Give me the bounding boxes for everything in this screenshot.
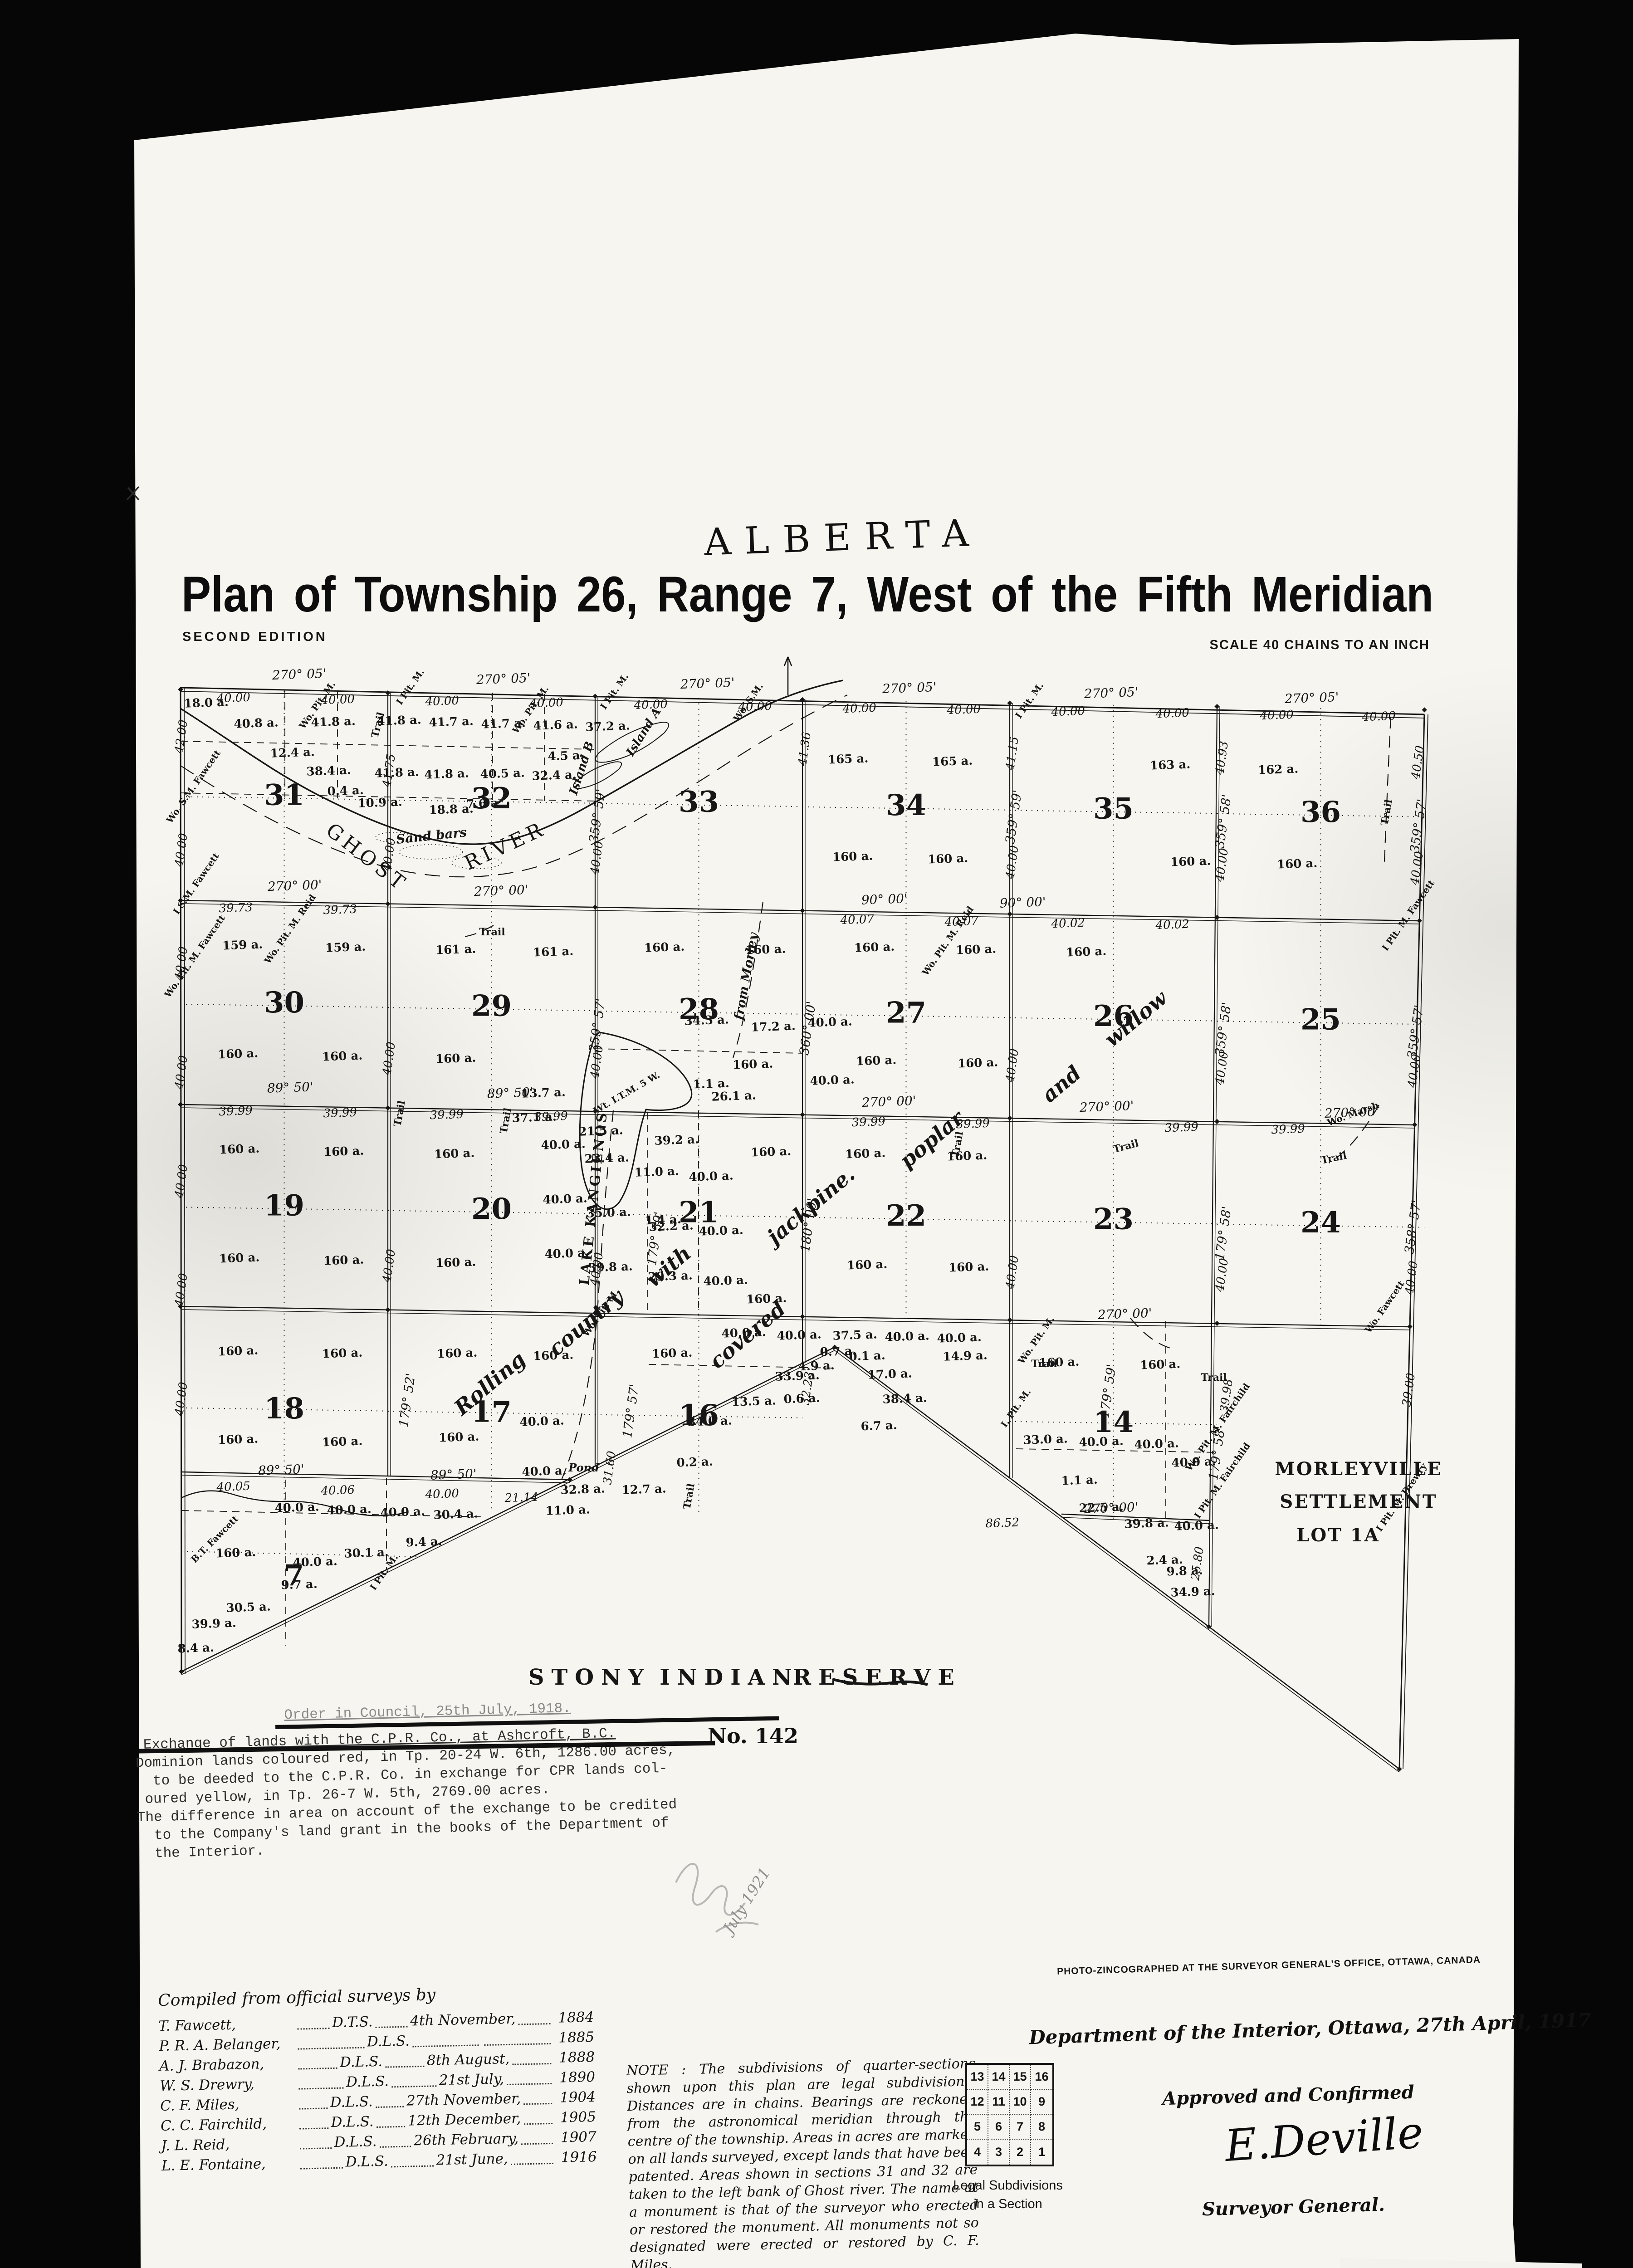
acreage-label: 40.0 a.	[541, 1137, 586, 1152]
surveyor-cell: D.L.S.	[334, 2131, 377, 2152]
acreage-label: 12.4 a.	[270, 745, 315, 760]
surveyor-cell: 1885	[553, 2027, 595, 2048]
acreage-label: 38.4 a.	[306, 763, 351, 778]
distance-label: 40.00	[425, 694, 459, 709]
compiled-surveys-block: Compiled from official surveys by T. Faw…	[158, 1982, 597, 2176]
acreage-label: 10.9 a.	[357, 795, 402, 810]
order-number: No. 142	[708, 1724, 798, 1748]
survey-monument-mark	[1422, 707, 1427, 712]
trail-label: Trail	[681, 1482, 697, 1510]
bearing-label: 359° 57'	[586, 997, 608, 1053]
surveyor-cell	[484, 2043, 551, 2046]
surveyor-cell	[298, 2068, 337, 2070]
trail-label: Trail	[1031, 1358, 1057, 1370]
bearing-label: 270° 00'	[1083, 1500, 1139, 1516]
bearing-label: 359° 59'	[1002, 789, 1025, 845]
order-in-council-block: Order in Council, 25th July, 1918. Excha…	[134, 1694, 818, 1864]
acreage-label: 1.1 a.	[693, 1077, 729, 1092]
surveyor-cell: T. Fawcett,	[158, 2014, 295, 2036]
surveyor-cell: D.L.S.	[346, 2071, 389, 2092]
acreage-label: 40.0 a.	[689, 1169, 733, 1184]
distance-label: 39.99	[1271, 1122, 1305, 1137]
surveyor-cell: L. E. Fontaine,	[161, 2153, 298, 2176]
acreage-label: 40.0 a.	[327, 1502, 372, 1517]
distance-label: 40.00	[1003, 845, 1022, 880]
section-line-horizontal	[181, 1306, 1410, 1327]
acreage-label: 161 a.	[435, 942, 476, 957]
acreage-label: 39.9 a.	[191, 1616, 236, 1631]
trail-label: Trail	[1201, 1372, 1227, 1383]
acreage-label: 40.0 a.	[543, 1192, 587, 1207]
distance-label: 40.00	[1213, 1257, 1231, 1293]
monument-label: I. Pit. M.	[998, 1387, 1033, 1429]
acreage-label: 159 a.	[222, 938, 263, 953]
surveyor-cell	[376, 2026, 408, 2028]
trail-label: Trail	[391, 1100, 408, 1127]
section-number-27: 27	[886, 996, 926, 1030]
surveyor-cell	[507, 2083, 552, 2085]
surveyor-cell: D.L.S.	[367, 2031, 410, 2052]
legend-cell: 14	[988, 2065, 1010, 2090]
legend-cell: 1	[1031, 2140, 1052, 2165]
scanned-township-plan: { "header": { "province": "ALBERTA", "ti…	[0, 0, 1633, 2268]
acreage-label: 160 a.	[928, 851, 968, 866]
distance-label: 40.00	[1003, 1048, 1022, 1084]
acreage-label: 160 a.	[219, 1251, 260, 1266]
surveyor-cell: D.L.S.	[330, 2092, 373, 2112]
acreage-label: 160 a.	[958, 1056, 998, 1070]
feature-label: country	[544, 1283, 630, 1361]
section-number-34: 34	[886, 788, 926, 822]
surveyor-cell	[524, 2103, 552, 2105]
surveyor-cell	[512, 2063, 551, 2065]
section-number-22: 22	[886, 1199, 926, 1233]
section-number-14: 14	[1093, 1405, 1134, 1439]
acreage-label: 40.0 a.	[522, 1464, 567, 1479]
acreage-label: 160 a.	[856, 1053, 897, 1068]
surveyor-cell	[376, 2126, 406, 2128]
section-number-17: 17	[471, 1395, 512, 1429]
acreage-label: 13.5 a.	[731, 1394, 776, 1409]
acreage-label: 165 a.	[828, 752, 869, 767]
monument-label: I Pit. M.	[598, 671, 631, 712]
section-number-18: 18	[264, 1392, 304, 1426]
acreage-label: 17.2 a.	[751, 1019, 796, 1034]
acreage-label: 38.4 a.	[882, 1391, 927, 1406]
distance-label: 40.50	[1409, 745, 1427, 781]
acreage-label: 159 a.	[325, 940, 366, 955]
distance-label: 40.00	[172, 1272, 191, 1308]
bearing-label: 270° 05'	[1083, 684, 1139, 701]
distance-label: 40.00	[172, 832, 191, 868]
acreage-label: 40.8 a.	[234, 716, 279, 731]
legend-cell: 12	[967, 2090, 988, 2115]
survey-monument-mark	[1407, 1324, 1412, 1329]
distance-label: 40.00	[172, 1381, 191, 1417]
surveyor-cell: 27th November,	[406, 2088, 521, 2111]
surveyor-cell: 1884	[553, 2007, 594, 2028]
surveyor-cell	[391, 2085, 436, 2087]
acreage-label: 40.0 a.	[274, 1500, 319, 1515]
distance-label: 31.60	[601, 1450, 619, 1486]
legend-cell: 13	[967, 2065, 988, 2090]
surveyor-cell	[518, 2023, 551, 2025]
acreage-label: 17.0 a.	[867, 1367, 912, 1382]
distance-label: 21.14	[504, 1491, 538, 1505]
acreage-label: 160 a.	[1170, 854, 1211, 869]
acreage-label: 160 a.	[832, 849, 873, 864]
township-map: 18.0 a.40.8 a.41.8 a.12.4 a.38.4 a.0.4 a…	[0, 0, 1633, 2268]
acreage-label: 160 a.	[956, 942, 997, 957]
section-number-35: 35	[1093, 792, 1134, 826]
bearing-label: 358° 57'	[1402, 1199, 1424, 1255]
surveyor-cell: 8th August,	[426, 2049, 509, 2071]
acreage-label: 39.8 a.	[1124, 1516, 1169, 1531]
acreage-label: 160 a.	[218, 1432, 259, 1447]
section-number-26: 26	[1093, 999, 1134, 1033]
surveyor-cell: P. R. A. Belanger,	[159, 2033, 295, 2056]
acreage-label: 9.4 a.	[406, 1535, 442, 1550]
legend-cell: 6	[988, 2115, 1010, 2140]
surveyor-cell: D.L.S.	[331, 2112, 374, 2132]
section-number-32: 32	[471, 782, 512, 816]
distance-label: 40.00	[842, 701, 876, 716]
acreage-label: 160 a.	[733, 1057, 773, 1072]
distance-label: 40.06	[320, 1483, 355, 1498]
acreage-label: 0.4 a.	[327, 784, 364, 799]
distance-label: 42.00	[172, 719, 191, 755]
acreage-label: 160 a.	[322, 1049, 363, 1064]
surveyor-cell	[298, 2028, 330, 2029]
distance-label: 39.99	[1164, 1120, 1198, 1135]
feature-label: and	[1037, 1061, 1086, 1107]
legend-cell: 9	[1031, 2090, 1052, 2115]
acreage-label: 160 a.	[218, 1344, 259, 1359]
legend-caption-1: Legal Subdivisions	[949, 2178, 1067, 2193]
bearing-label: 270° 05'	[475, 670, 531, 687]
acreage-label: 30.1 a.	[344, 1545, 389, 1560]
distance-label: 41.15	[1003, 736, 1022, 772]
survey-monument-mark	[1417, 918, 1422, 923]
section-number-16: 16	[679, 1398, 719, 1432]
acreage-label: 160 a.	[437, 1346, 478, 1361]
distance-label: 39.00	[1400, 1372, 1418, 1408]
acreage-label: 161 a.	[533, 944, 574, 959]
section-number-36: 36	[1301, 795, 1341, 829]
surveyor-cell: 26th February,	[414, 2129, 519, 2151]
surveyor-cell: 21st July,	[439, 2069, 504, 2090]
section-number-25: 25	[1301, 1002, 1341, 1036]
bearing-label: 270° 05'	[881, 679, 937, 696]
meridian-arrow	[784, 657, 792, 695]
acreage-label: 0.2 a.	[676, 1455, 713, 1470]
surveyor-cell	[511, 2163, 553, 2165]
acreage-label: 160 a.	[435, 1255, 476, 1270]
acreage-label: 160 a.	[439, 1430, 479, 1445]
bearing-label: 270° 00'	[1097, 1305, 1152, 1322]
distance-label: 40.05	[216, 1480, 250, 1495]
acreage-label: 160 a.	[854, 940, 895, 955]
distance-label: 40.00	[1259, 708, 1294, 723]
section-number-33: 33	[679, 785, 719, 819]
acreage-label: 41.8 a.	[311, 714, 356, 729]
acreage-label: 160 a.	[322, 1434, 363, 1449]
distance-label: 39.99	[851, 1115, 885, 1130]
distance-label: 40.02	[1155, 918, 1189, 933]
distance-label: 40.00	[1403, 1260, 1421, 1296]
section-number-19: 19	[264, 1188, 304, 1222]
legend-cell: 8	[1031, 2115, 1052, 2140]
surveyor-cell: C. C. Fairchild,	[161, 2113, 297, 2136]
distance-label: 25.80	[1188, 1546, 1207, 1582]
surveyor-cell	[380, 2146, 411, 2147]
surveyor-cell	[385, 2066, 424, 2068]
survey-monument-mark	[800, 908, 805, 913]
acreage-label: 160 a.	[847, 1257, 888, 1272]
surveyor-cell: D.L.S.	[340, 2052, 383, 2072]
bearing-label: 270° 00'	[267, 877, 322, 894]
section-number-30: 30	[264, 986, 304, 1020]
bearing-label: 90° 00'	[861, 891, 908, 908]
acreage-label: 160 a.	[751, 1144, 792, 1159]
surveyor-cell: 1907	[555, 2127, 596, 2148]
acreage-label: 39.2 a.	[654, 1133, 699, 1148]
distance-label: 40.00	[172, 1055, 191, 1090]
acreage-label: 160 a.	[949, 1260, 989, 1275]
feature-label: LOT 1A	[1296, 1525, 1380, 1546]
distance-label: 41.75	[380, 753, 398, 789]
section-line-horizontal	[181, 1108, 1415, 1128]
survey-monument-mark	[385, 901, 390, 906]
section-number-7: 7	[284, 1559, 304, 1593]
distance-label: 39.99	[323, 1106, 357, 1121]
acreage-label: 163 a.	[1150, 758, 1191, 772]
surveyor-cell: 1888	[554, 2047, 595, 2068]
acreage-label: 40.0 a.	[519, 1414, 564, 1429]
feature-label: SETTLEMENT	[1280, 1491, 1437, 1512]
acreage-label: 8.4 a.	[177, 1641, 214, 1656]
acreage-label: 40.5 a.	[480, 766, 525, 781]
acreage-label: 160 a.	[644, 940, 685, 955]
monument-label: I Pit. M.	[1013, 680, 1046, 721]
section-number-24: 24	[1301, 1206, 1341, 1240]
surveyor-cell	[299, 2127, 328, 2129]
surveyor-cell	[300, 2147, 332, 2149]
acreage-label: 160 a.	[1277, 856, 1318, 871]
bearing-label: 270° 00'	[473, 882, 528, 899]
acreage-label: 41.6 a.	[533, 718, 578, 733]
legend-grid: 13141516121110956784321	[965, 2063, 1054, 2166]
acreage-label: 160 a.	[322, 1346, 363, 1361]
acreage-label: 40.0 a.	[1174, 1518, 1219, 1533]
survey-monument-mark	[1214, 704, 1219, 709]
legend-cell: 7	[1010, 2115, 1031, 2140]
distance-label: 40.00	[1155, 706, 1189, 721]
acreage-label: 160 a.	[218, 1046, 259, 1061]
surveyor-cell	[376, 2106, 404, 2108]
surveyor-cell	[298, 2087, 343, 2090]
corner-check-mark	[127, 487, 139, 500]
survey-monument-mark	[385, 1307, 390, 1312]
acreage-label: 41.8 a.	[424, 767, 469, 782]
acreage-label: 162 a.	[1258, 762, 1299, 777]
distance-label: 39.73	[323, 903, 357, 918]
legend-cell: 16	[1031, 2065, 1052, 2090]
quarter-line-dashed	[595, 1049, 803, 1053]
section-number-31: 31	[264, 778, 304, 812]
monument-label: I Pit. M.	[394, 667, 426, 707]
acreage-label: 41.7 a.	[429, 714, 474, 729]
acreage-label: 40.0 a.	[380, 1505, 425, 1520]
survey-monument-mark	[385, 690, 390, 695]
acreage-label: 160 a.	[434, 1146, 475, 1161]
survey-monument-mark	[385, 1105, 390, 1110]
surveyor-cell: C. F. Miles,	[160, 2093, 297, 2116]
section-number-23: 23	[1093, 1202, 1134, 1236]
acreage-label: 40.0 a.	[1134, 1437, 1179, 1452]
surveyor-cell: 12th December,	[408, 2108, 521, 2131]
survey-monument-mark	[592, 904, 597, 909]
distance-label: 40.02	[1051, 916, 1085, 931]
feature-label: INDIAN	[660, 1665, 799, 1690]
surveyor-cell: 1890	[554, 2067, 596, 2088]
bearing-label: 89° 50'	[430, 1466, 477, 1483]
acreage-label: 32.8 a.	[560, 1482, 605, 1497]
legend-cell: 11	[988, 2090, 1010, 2115]
survey-monument-mark	[178, 1102, 183, 1107]
surveyor-cell: 1916	[556, 2147, 597, 2168]
surveyor-cell	[299, 2107, 328, 2109]
distance-label: 40.00	[1408, 850, 1426, 886]
section-number-21: 21	[679, 1195, 719, 1229]
section-line-89-50	[181, 1472, 570, 1480]
acreage-label: 165 a.	[932, 754, 973, 769]
section-number-29: 29	[471, 989, 512, 1023]
feature-label: STONY	[528, 1665, 651, 1690]
survey-monument-mark	[1214, 1119, 1219, 1124]
legend-cell: 5	[967, 2115, 988, 2140]
acreage-label: 0.1 a.	[849, 1349, 885, 1364]
section-number-28: 28	[679, 992, 719, 1026]
survey-monument-mark	[800, 1314, 805, 1319]
distance-label: 86.52	[985, 1516, 1019, 1531]
bearing-label: 89° 50'	[258, 1461, 304, 1478]
survey-monument-mark	[1214, 1321, 1219, 1326]
distance-label: 39.99	[430, 1108, 464, 1123]
legend-cell: 10	[1010, 2090, 1031, 2115]
sand-bar	[399, 845, 463, 859]
feature-label: from Morley	[731, 931, 761, 1022]
acreage-label: 30.5 a.	[226, 1600, 271, 1615]
bearing-label: 179° 52'	[396, 1372, 418, 1428]
surveyor-cell	[521, 2143, 553, 2145]
distance-label: 40.07	[840, 913, 875, 928]
trail-path	[1384, 717, 1391, 862]
acreage-label: 40.0 a.	[703, 1273, 748, 1288]
acreage-label: 160 a.	[323, 1253, 364, 1268]
acreage-label: 2.4 a.	[1146, 1553, 1183, 1568]
distance-label: 40.00	[380, 1248, 398, 1284]
legend-cell: 4	[967, 2140, 988, 2165]
distance-label: 39.99	[534, 1110, 568, 1124]
bearing-label: 270° 05'	[1284, 689, 1339, 706]
acreage-label: 33.0 a.	[1023, 1432, 1068, 1447]
survey-monument-mark	[179, 1669, 184, 1674]
trail-label: Trail	[498, 1107, 514, 1134]
bearing-label: 89° 50'	[487, 1085, 533, 1101]
bearing-label: 359° 57'	[1407, 798, 1429, 854]
legend-caption-2: in a Section	[949, 2197, 1067, 2212]
bearing-label: 270° 05'	[271, 666, 327, 683]
survey-monument-mark	[592, 694, 597, 699]
acreage-label: 160 a.	[323, 1144, 364, 1159]
distance-label: 40.00	[1003, 1255, 1022, 1290]
monument-label: I Pit. M. Fawcett	[1379, 878, 1437, 953]
acreage-label: 6.7 a.	[861, 1419, 897, 1434]
surveyor-cell	[300, 2167, 343, 2170]
legend-cell: 2	[1010, 2140, 1031, 2165]
section-line-horizontal	[181, 1310, 1410, 1330]
survey-monument-mark	[1007, 911, 1012, 916]
surveyor-cell: W. S. Drewry,	[160, 2073, 296, 2096]
bearing-label: 359° 58'	[1212, 1001, 1234, 1057]
bearing-label: 270° 05'	[680, 675, 735, 692]
surveyor-cell: 1904	[554, 2087, 596, 2108]
surveyor-cell: D.T.S.	[332, 2012, 373, 2033]
surveyor-cell: 4th November,	[410, 2009, 516, 2031]
acreage-label: 160 a.	[435, 1051, 476, 1066]
acreage-label: 40.0 a.	[937, 1330, 982, 1345]
acreage-label: 12.7 a.	[621, 1482, 666, 1497]
bearing-label: 270° 00'	[1079, 1098, 1134, 1115]
distance-label: 40.00	[216, 691, 250, 706]
trail-label: Trail	[1379, 798, 1395, 826]
acreage-label: 160 a.	[215, 1545, 256, 1560]
bearing-label: 179° 57'	[620, 1383, 642, 1439]
surveyor-cell	[298, 2047, 365, 2050]
trail-label: Trail	[479, 926, 505, 938]
bearing-label: 270° 00'	[861, 1093, 916, 1110]
trail-label: Trail	[1112, 1137, 1140, 1155]
trail-label: Trail	[1320, 1149, 1348, 1166]
acreage-label: 11.0 a.	[634, 1164, 679, 1179]
bearing-label: 359° 57'	[1404, 1004, 1427, 1060]
bearing-label: 359° 58'	[1212, 793, 1234, 849]
acreage-label: 40.0 a.	[885, 1329, 929, 1344]
acreage-label: 26.1 a.	[711, 1089, 756, 1104]
section-line-horizontal	[181, 904, 1419, 924]
surveyor-cell: 1905	[555, 2107, 596, 2128]
acreage-label: 160 a.	[845, 1146, 886, 1161]
bearing-label: 359° 59'	[586, 788, 608, 844]
section-number-20: 20	[471, 1192, 512, 1226]
surveyor-cell: A. J. Brabazon,	[159, 2053, 296, 2076]
acreage-label: 11.0 a.	[545, 1503, 590, 1518]
feature-label: MORLEYVILLE	[1275, 1458, 1442, 1480]
distance-label: 40.00	[380, 1041, 398, 1077]
feature-label: RIVER	[461, 817, 550, 875]
distance-label: 40.00	[1051, 704, 1085, 719]
feature-label: Pond	[568, 1461, 599, 1474]
acreage-label: 37.2 a.	[585, 719, 630, 734]
surveyor-cell	[524, 2123, 553, 2125]
surveyor-cell: J. L. Reid,	[161, 2133, 298, 2156]
bearing-label: 89° 50'	[267, 1079, 313, 1096]
distance-label: 40.00	[946, 703, 981, 718]
acreage-label: 37.5 a.	[832, 1328, 877, 1343]
legend-cell: 15	[1010, 2065, 1031, 2090]
quarter-line-dashed	[1016, 1449, 1217, 1452]
